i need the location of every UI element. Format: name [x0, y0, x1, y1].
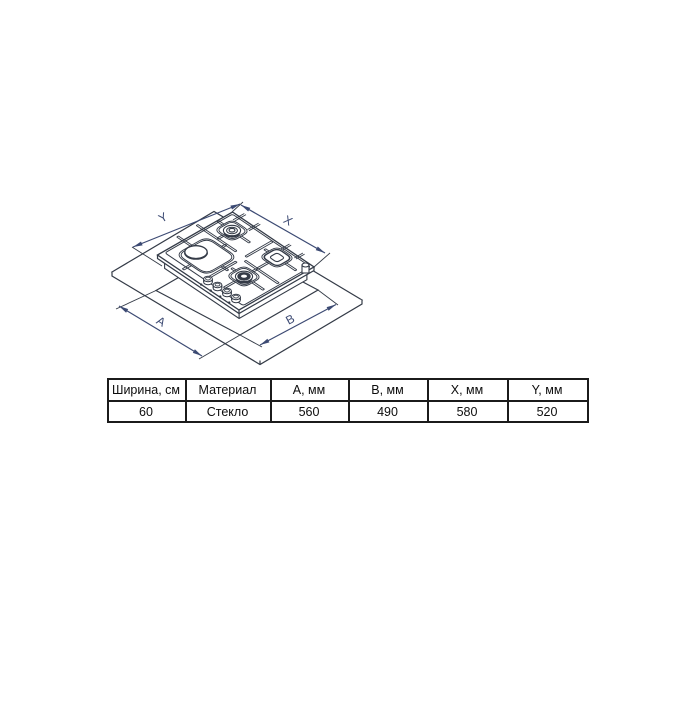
- svg-text:A: A: [154, 314, 168, 330]
- svg-text:X: X: [281, 212, 295, 228]
- svg-text:Y: Y: [156, 209, 170, 225]
